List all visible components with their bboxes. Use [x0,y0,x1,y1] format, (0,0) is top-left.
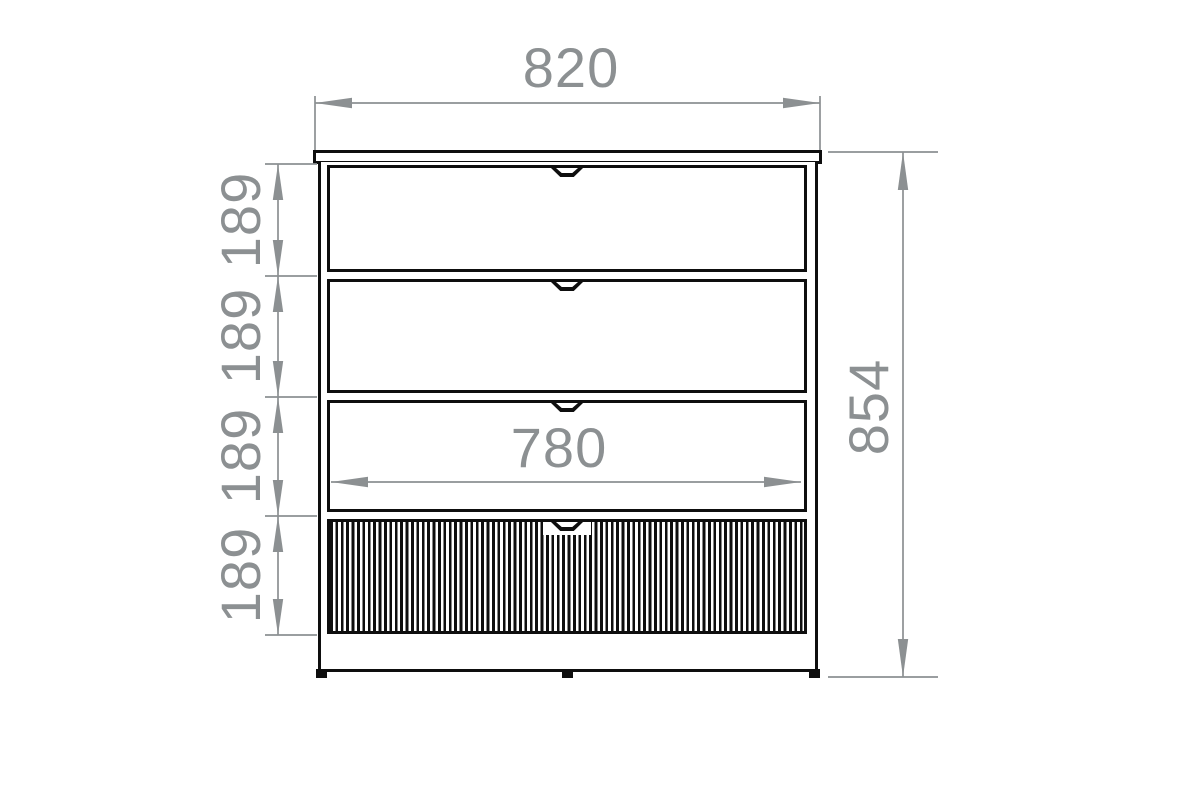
cabinet-foot-center [562,669,573,678]
handle-recess [556,522,578,527]
drawer-front-2 [327,279,807,393]
drawer-height-label-3: 189 [213,408,269,504]
arrow-189-3-down [273,480,283,516]
drawer-front-1 [327,165,807,272]
arrow-189-1-up [273,164,283,200]
arrow-189-4-up [273,516,283,552]
handle-recess [556,168,578,173]
drawer-height-label-4: 189 [213,527,269,623]
arrow-820-left [315,98,352,108]
overall-height-label: 854 [841,359,897,455]
handle-recess [556,403,578,408]
arrow-854-up [898,152,908,190]
arrow-854-down [898,639,908,677]
arrow-820-right [783,98,820,108]
drawer-front-4-fluted [327,519,807,634]
arrow-189-1-down [273,240,283,276]
drawer-height-label-1: 189 [213,172,269,268]
overall-width-label: 820 [523,40,619,96]
inner-width-label: 780 [511,420,607,476]
handle-recess [556,282,578,287]
drawer-chain-tick-lines [265,164,317,635]
cabinet-foot-left [316,669,327,678]
arrow-189-4-down [273,599,283,635]
drawer-height-label-2: 189 [213,288,269,384]
arrow-189-2-up [273,276,283,312]
arrow-189-2-down [273,361,283,397]
width-820-extension-lines [315,96,820,150]
cabinet-foot-right [809,669,820,678]
technical-drawing-canvas: 820 854 780 189 189 189 189 [0,0,1200,800]
arrow-189-3-up [273,397,283,433]
